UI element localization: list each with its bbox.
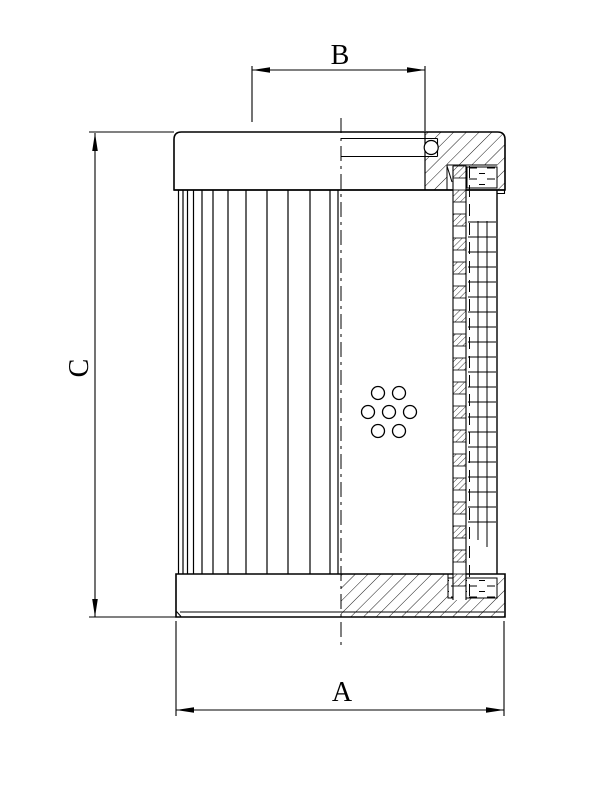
core-perforation-cell: [453, 526, 466, 538]
perforated-core-tube: [453, 166, 466, 600]
core-perforation-cell: [453, 406, 466, 418]
dimension-c: C: [64, 132, 176, 617]
dimension-a-label: A: [332, 677, 353, 708]
bypass-hole: [362, 406, 375, 419]
support-mesh: [468, 221, 496, 547]
core-perforation-cell: [453, 454, 466, 466]
arrowhead-right: [486, 707, 504, 713]
core-perforation-cell: [453, 502, 466, 514]
filter-element-drawing: B C A: [0, 0, 612, 792]
core-perforation-cell: [453, 358, 466, 370]
bypass-hole: [404, 406, 417, 419]
o-ring-seal: [424, 141, 438, 155]
top-gasket: [467, 167, 497, 188]
arrowhead-right: [407, 67, 425, 73]
core-perforation-cell: [453, 574, 466, 586]
core-perforation-cell: [453, 310, 466, 322]
core-perforation-cell: [453, 334, 466, 346]
arrowhead-up: [92, 133, 98, 151]
core-perforation-cell: [453, 550, 466, 562]
arrowhead-left: [176, 707, 194, 713]
core-perforation-cell: [453, 190, 466, 202]
dimension-b-label: B: [331, 40, 350, 71]
core-perforation-cell: [453, 166, 466, 178]
core-perforation-cell: [453, 262, 466, 274]
bypass-holes: [362, 387, 417, 438]
drawing-sheet: B C A: [0, 0, 612, 792]
bypass-hole: [383, 406, 396, 419]
core-perforation-cell: [453, 238, 466, 250]
core-perforation-cell: [453, 214, 466, 226]
core-perforation-cell: [453, 382, 466, 394]
core-perforation-cell: [453, 478, 466, 490]
bypass-hole: [393, 387, 406, 400]
pleated-filter-media: [179, 190, 339, 574]
arrowhead-left: [252, 67, 270, 73]
bypass-hole: [372, 387, 385, 400]
dimension-a: A: [176, 621, 504, 716]
core-perforation-cell: [453, 430, 466, 442]
core-perforation-cell: [453, 286, 466, 298]
dimension-c-label: C: [64, 359, 95, 378]
dimension-b: B: [252, 40, 425, 131]
bypass-hole: [372, 425, 385, 438]
arrowhead-down: [92, 599, 98, 617]
bypass-hole: [393, 425, 406, 438]
